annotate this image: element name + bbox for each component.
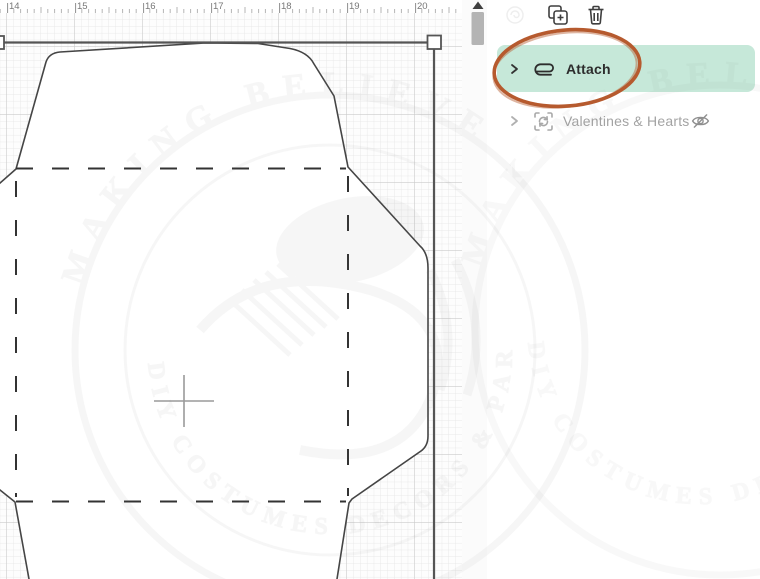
selection-handle-top-right[interactable] — [428, 36, 442, 50]
design-canvas[interactable]: 14151617181920 — [0, 0, 487, 579]
layer-label-attach: Attach — [566, 61, 611, 77]
horizontal-ruler: 14151617181920 — [0, 0, 462, 13]
layer-label-valentines-hearts: Valentines & Hearts — [563, 113, 690, 129]
chevron-right-icon[interactable] — [507, 62, 521, 76]
eye-off-icon[interactable] — [690, 111, 711, 132]
scrollbar-thumb[interactable] — [472, 12, 485, 45]
layer-row-valentines-hearts[interactable]: Valentines & Hearts — [497, 101, 755, 141]
layer-row-attach[interactable]: Attach — [497, 45, 755, 92]
selection-handle-top-left[interactable] — [0, 36, 4, 49]
chevron-right-icon[interactable] — [507, 114, 521, 128]
duplicate-icon[interactable] — [547, 4, 569, 26]
ruler-number: 15 — [77, 1, 88, 12]
layers-toolbar — [487, 2, 760, 30]
canvas-svg: 14151617181920 — [0, 0, 487, 579]
canvas-scrollbar — [462, 0, 487, 579]
watermark-smudge — [503, 3, 527, 32]
ruler-number: 16 — [145, 1, 156, 12]
trash-icon[interactable] — [585, 4, 607, 26]
ruler-number: 14 — [9, 1, 20, 12]
design-app-window: 14151617181920 — [0, 0, 760, 579]
ruler-number: 19 — [349, 1, 360, 12]
ruler-number: 17 — [213, 1, 224, 12]
ruler-number: 18 — [281, 1, 292, 12]
layers-panel: Attach Valentin — [487, 0, 760, 579]
group-icon — [533, 111, 554, 132]
paperclip-icon — [533, 61, 557, 76]
ruler-number: 20 — [417, 1, 428, 12]
